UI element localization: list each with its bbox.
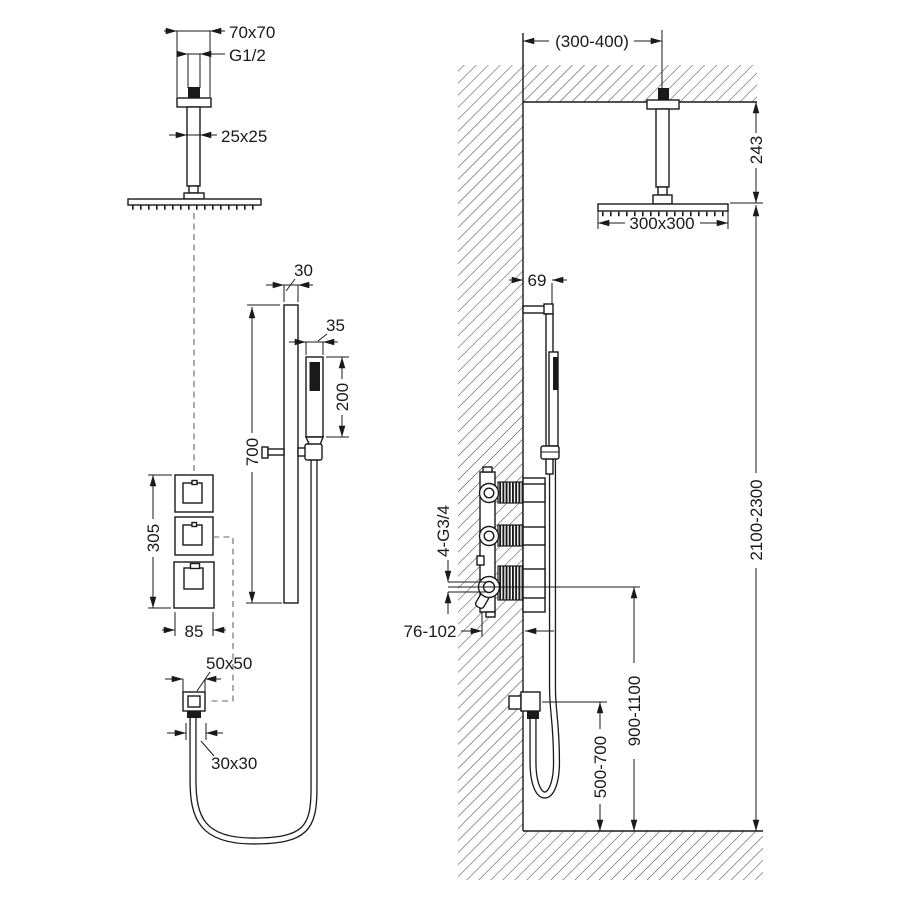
holder-arm-left [268,449,284,455]
slide-bar [284,305,298,603]
installed-handshower-face [553,357,558,390]
bar-top-cap [544,304,553,314]
arm-step [189,186,198,193]
trim-knob-1-notch [192,481,197,485]
cartridge-1 [498,482,523,503]
dim-thread-g12: G1/2 [229,46,266,65]
mounting-tab-top [483,467,492,472]
shower-head-plate [128,199,261,205]
shower-arm [187,107,200,186]
handshower-face [310,362,321,391]
trim-knob-2 [183,525,202,545]
installation-diagram-svg: 70x70 G1/2 25x25 30 [0,0,900,900]
trim-knob-3-lever [191,564,200,569]
ceiling-nipple [188,87,200,98]
dim-head-height-2100-2300: 2100-2300 [747,479,766,560]
dim-bar-depth-69: 69 [528,271,547,290]
installed-outlet-connector [527,711,539,719]
ceiling-flange [177,98,211,107]
dim-outlet-height-500-700: 500-700 [591,736,610,798]
mounting-tab-bottom [486,612,495,617]
valve-knob-2-center [484,531,494,541]
handshower-holder [305,444,322,460]
cartridge-3 [498,566,523,600]
mounting-boss [477,556,484,565]
valve-port-1 [523,484,545,502]
trim-knob-3 [184,568,203,589]
valve-port-3 [523,569,545,598]
installed-head-plate [598,204,728,211]
head-connector [184,193,204,199]
paper-background [0,0,900,900]
outlet-in-wall-fitting [509,696,521,709]
valve-knob-1-center [484,488,494,498]
trim-knob-1 [183,483,202,503]
dim-outlet-50x50: 50x50 [206,654,252,673]
shower-installation-diagram: 70x70 G1/2 25x25 30 [0,0,900,900]
cartridge-2 [498,525,523,546]
dim-valve-height-900-1100: 900-1100 [625,676,644,747]
installed-flange [647,100,679,109]
dim-arm-25x25: 25x25 [221,127,267,146]
dim-hand-width-35: 35 [326,316,345,335]
dim-trim-height-305: 305 [144,524,163,552]
dim-arm-offset-300-400: (300-400) [555,32,629,51]
installed-head-connector [653,195,672,204]
dim-bar-width-30: 30 [294,261,313,280]
installed-outlet-body [521,692,540,711]
dim-head-size-300x300: 300x300 [629,214,694,233]
installed-nipple [658,88,669,100]
dim-trim-width-85: 85 [185,622,204,641]
dim-bar-length-700: 700 [243,438,262,466]
installed-arm [656,109,669,187]
holder-end-cap [262,447,268,458]
outlet-hose-connector [187,711,201,718]
valve-port-2 [523,527,545,545]
dim-connector-30x30: 30x30 [211,754,257,773]
trim-knob-2-notch [192,523,197,527]
dim-ceiling-drop-243: 243 [747,136,766,164]
outlet-face [188,696,200,707]
dim-recess-depth-76-102: 76-102 [404,622,457,641]
installed-arm-step [658,187,667,195]
dim-ports-4-g34: 4-G3/4 [434,505,453,557]
dim-flange-70x70: 70x70 [229,23,275,42]
dim-hand-length-200: 200 [333,383,352,411]
